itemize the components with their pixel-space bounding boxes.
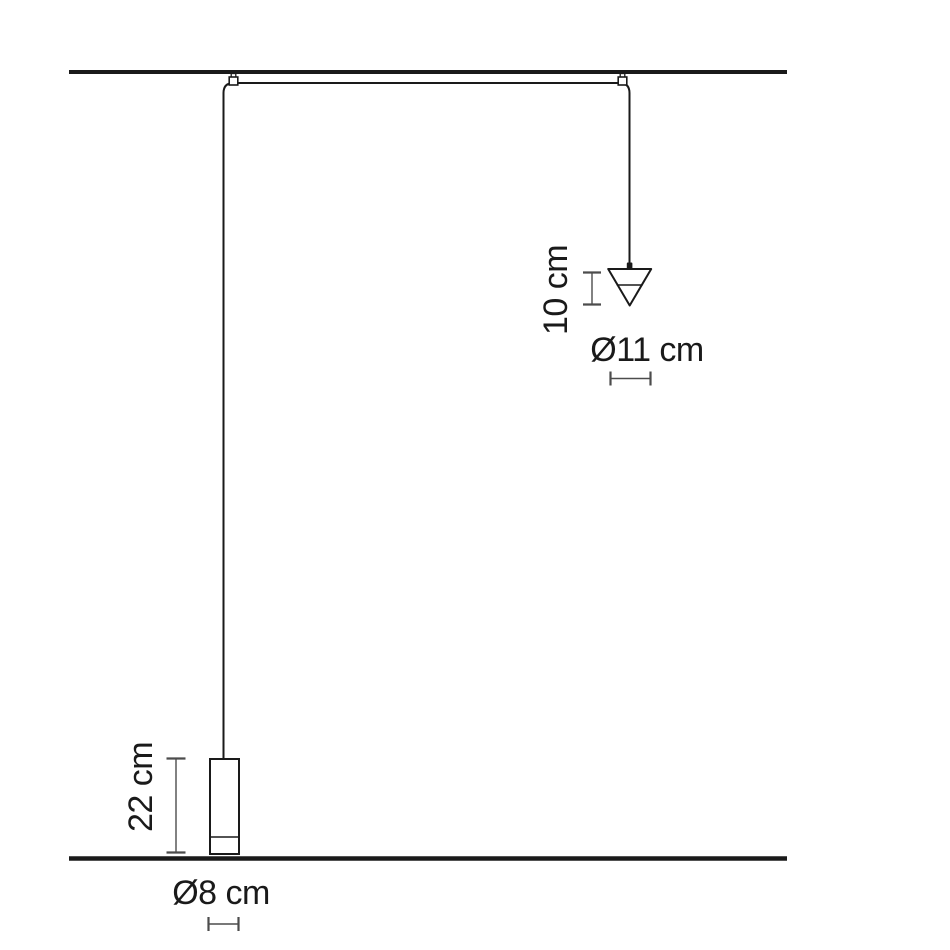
left-ceiling-fitting: [229, 74, 238, 86]
right-fitting-body: [618, 77, 627, 85]
pendant-lamp-dimension-diagram: 22 cm 10 cm Ø11 cm Ø8 cm: [0, 0, 950, 950]
cylinder-diameter-label: Ø8 cm: [172, 876, 270, 910]
cylinder-height-dimension: [167, 759, 186, 853]
cylinder-lamp-shade: [210, 759, 239, 854]
cone-height-label: 10 cm: [539, 245, 573, 335]
left-fitting-body: [229, 77, 238, 85]
cylinder-diameter-dimension: [209, 917, 239, 931]
cone-lamp-shade: [608, 269, 651, 306]
cone-height-dimension: [583, 273, 601, 305]
cone-diameter-dimension: [611, 372, 651, 386]
cone-diameter-label: Ø11 cm: [590, 333, 704, 367]
pendant-cable: [224, 83, 630, 759]
cylinder-height-label: 22 cm: [124, 742, 158, 832]
right-ceiling-fitting: [618, 74, 627, 86]
